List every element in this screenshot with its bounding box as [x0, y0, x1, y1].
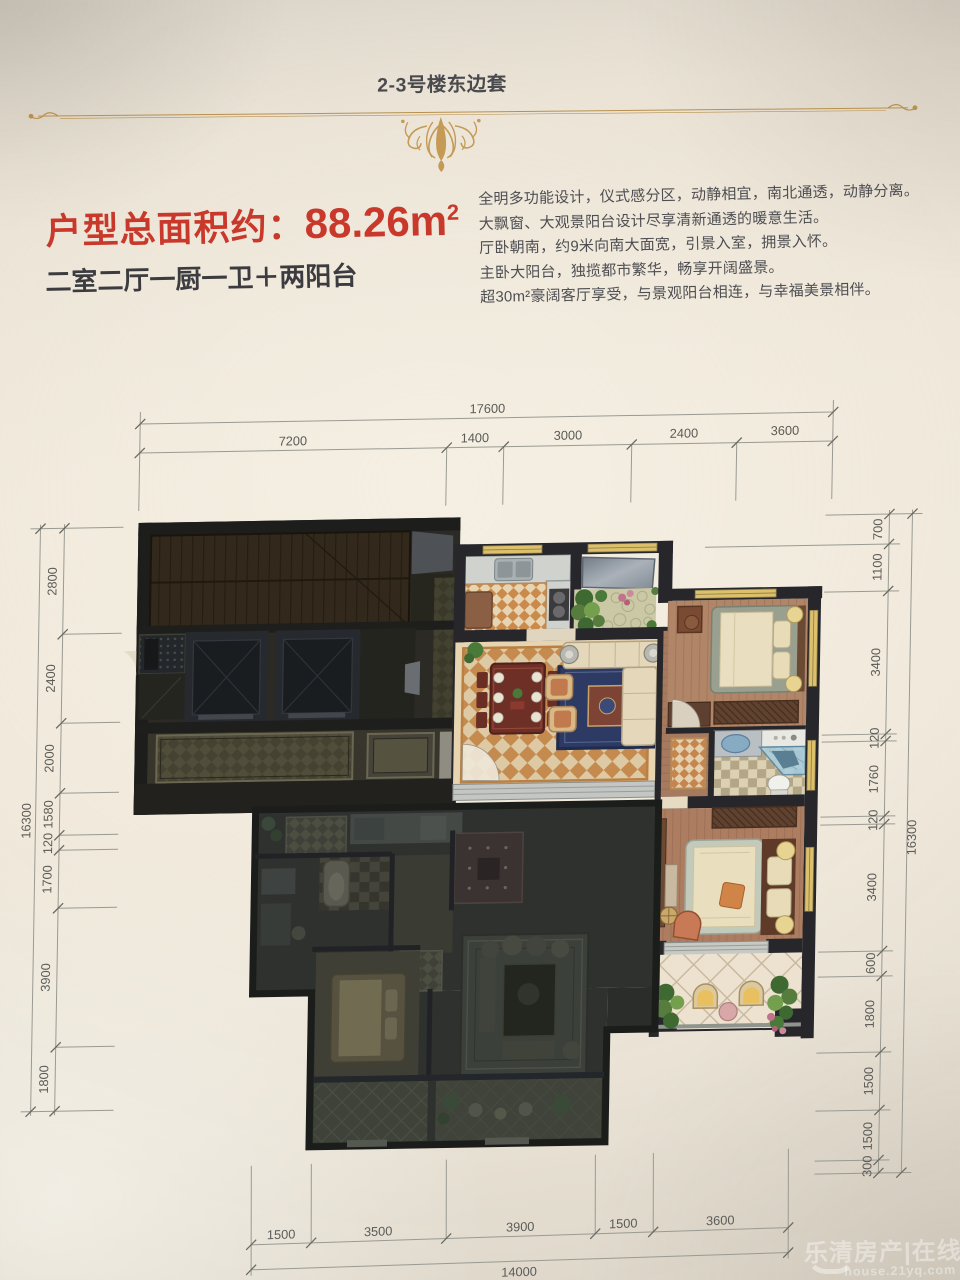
svg-text:1580: 1580: [40, 800, 55, 829]
svg-text:1500: 1500: [860, 1122, 875, 1151]
svg-text:2400: 2400: [43, 664, 58, 693]
svg-text:1400: 1400: [461, 430, 490, 445]
svg-text:3600: 3600: [706, 1212, 734, 1228]
svg-text:1800: 1800: [36, 1065, 51, 1094]
svg-text:1500: 1500: [609, 1215, 637, 1231]
svg-text:120: 120: [40, 833, 55, 855]
svg-text:1500: 1500: [861, 1067, 876, 1096]
svg-text:14000: 14000: [501, 1264, 537, 1280]
svg-text:17600: 17600: [469, 401, 505, 417]
svg-text:3400: 3400: [868, 648, 883, 677]
svg-text:2000: 2000: [41, 744, 56, 773]
svg-text:1500: 1500: [267, 1226, 295, 1242]
svg-text:3900: 3900: [38, 963, 53, 992]
svg-text:1760: 1760: [866, 765, 881, 794]
svg-text:3000: 3000: [554, 427, 583, 442]
svg-text:3500: 3500: [364, 1223, 392, 1239]
svg-text:2400: 2400: [670, 425, 699, 440]
svg-text:3900: 3900: [506, 1219, 534, 1235]
svg-text:120: 120: [867, 727, 882, 749]
svg-text:120: 120: [865, 809, 880, 831]
svg-text:3600: 3600: [771, 423, 800, 438]
svg-text:16300: 16300: [904, 820, 920, 856]
svg-text:3400: 3400: [864, 873, 879, 902]
svg-text:16300: 16300: [18, 803, 34, 839]
svg-text:1100: 1100: [869, 553, 884, 581]
svg-text:700: 700: [870, 518, 885, 540]
svg-text:7200: 7200: [279, 433, 308, 448]
svg-text:1800: 1800: [862, 1000, 877, 1029]
svg-text:600: 600: [863, 952, 878, 974]
svg-text:2800: 2800: [44, 567, 59, 596]
svg-text:300: 300: [859, 1155, 874, 1177]
svg-text:1700: 1700: [39, 865, 54, 894]
